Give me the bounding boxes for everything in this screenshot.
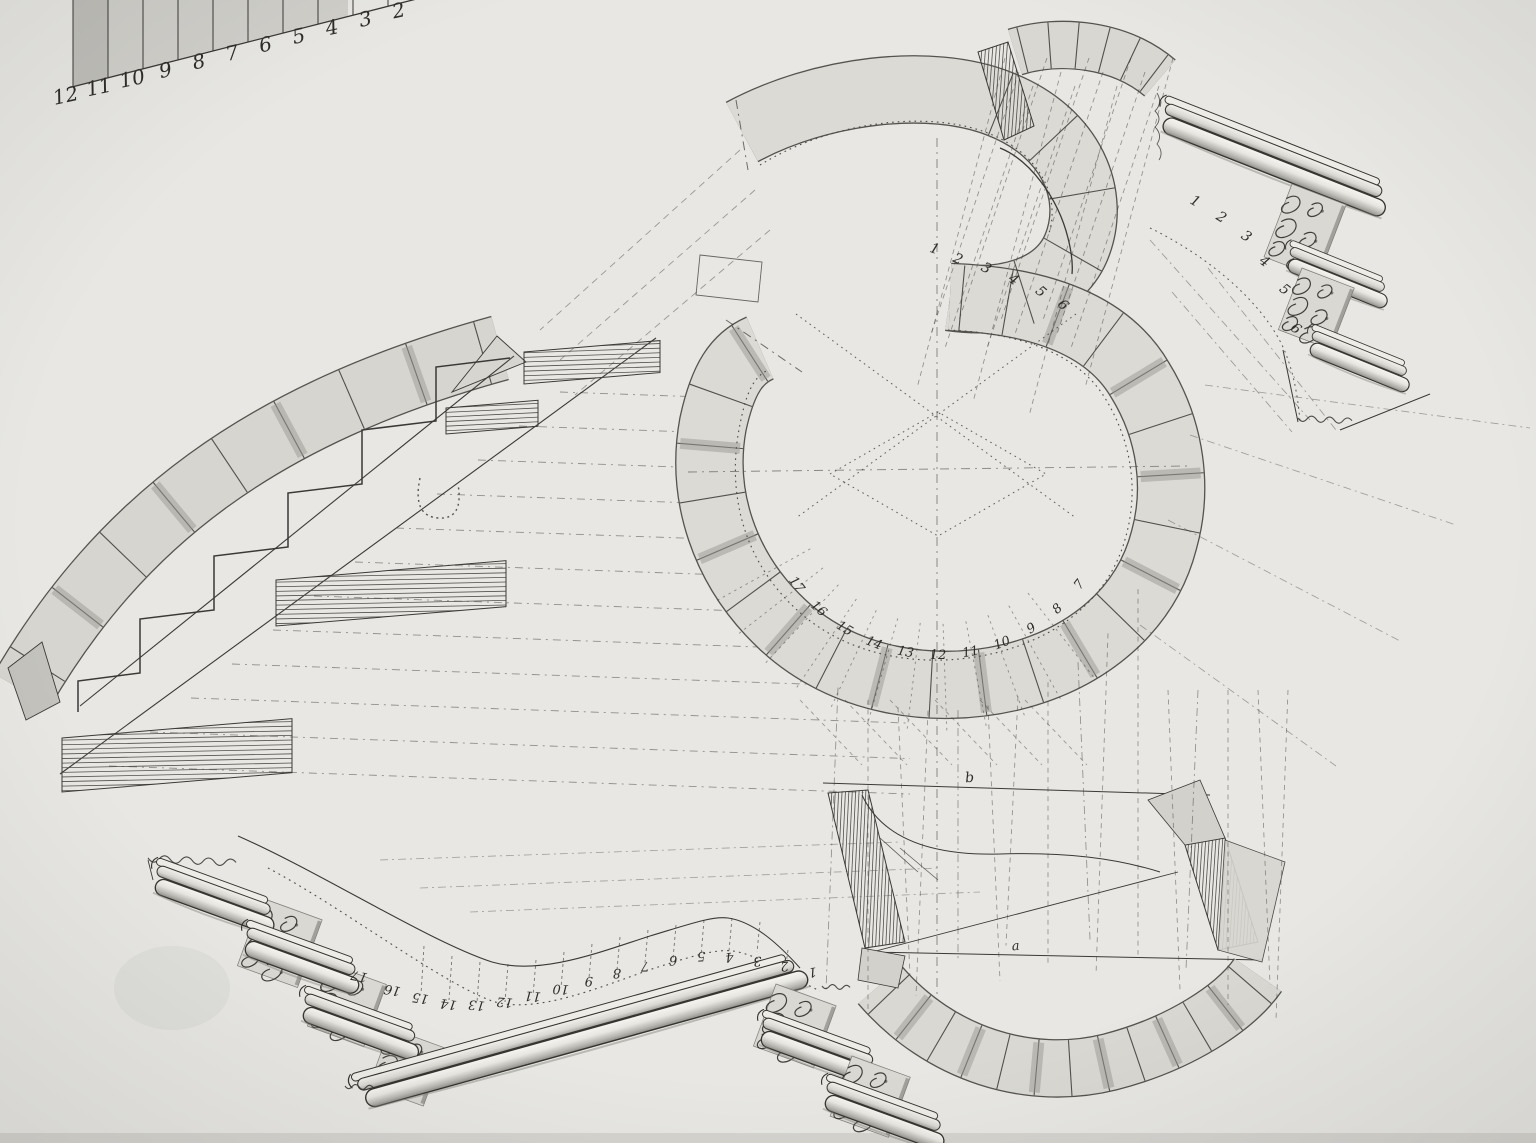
stair-construction-drawing: 1211109876543212345678910111213141516171… [0,0,1536,1143]
photo-vignette [0,0,1536,1143]
drawing-sheet: 1211109876543212345678910111213141516171… [0,0,1536,1143]
